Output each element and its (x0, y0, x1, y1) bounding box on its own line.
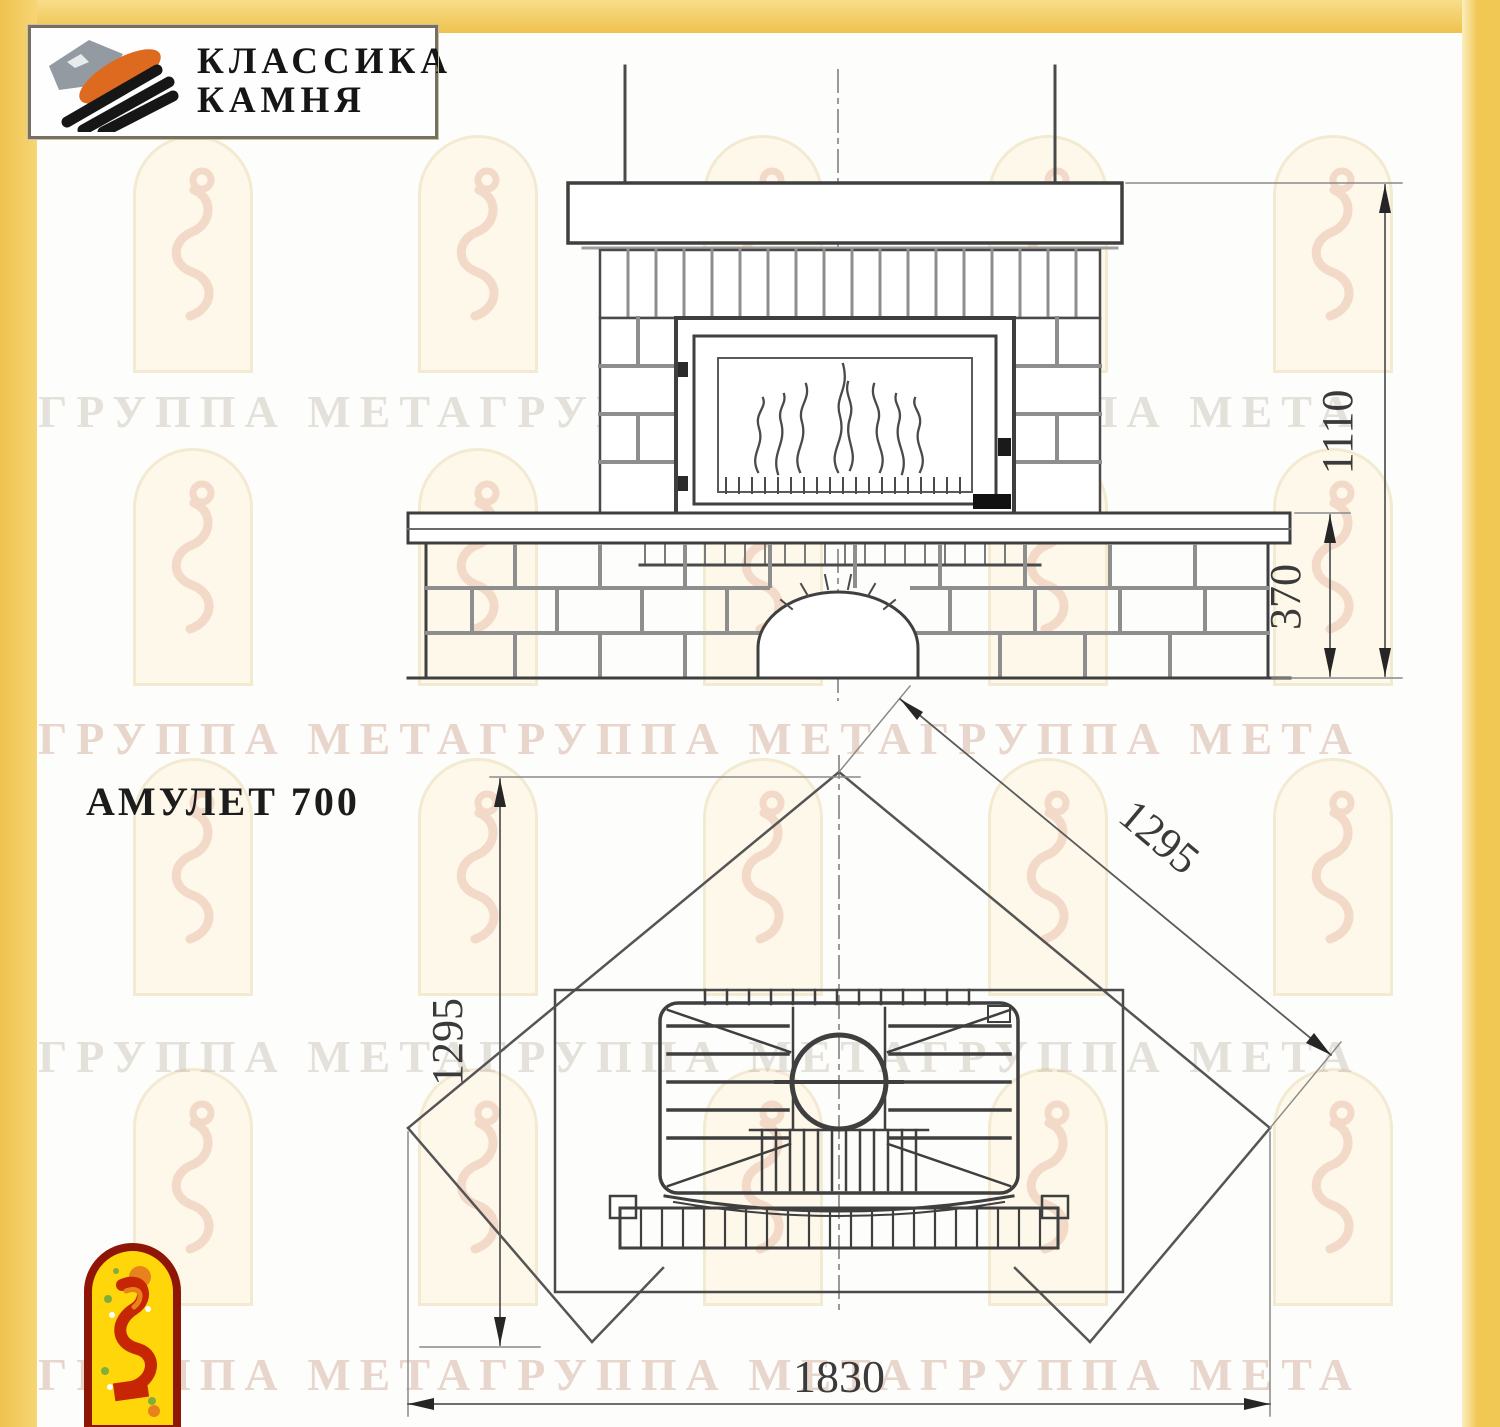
stone-base (408, 543, 1290, 678)
hinge-top (678, 362, 688, 377)
front-dimensions: 1110 370 (1126, 183, 1402, 678)
mantel-slab (568, 183, 1122, 243)
plan-view: 1295 1295 1830 (408, 686, 1341, 1416)
scanned-drawing-page: ГРУППА МЕТАГРУППА МЕТАГРУППА МЕТАГРУППА … (0, 0, 1500, 1427)
company-logo-text: КЛАССИКА КАМНЯ (197, 43, 452, 121)
stone-logo-icon (37, 32, 195, 132)
logo-line2: КАМНЯ (197, 82, 452, 121)
fireplace-technical-drawing: 1110 370 (0, 0, 1500, 1427)
dim-side-left-label: 1295 (423, 998, 472, 1086)
crest-logo (84, 1243, 181, 1427)
hinge-bottom (678, 476, 688, 491)
latch (998, 438, 1011, 456)
dim-front-width-label: 1830 (793, 1351, 885, 1402)
under-bench-vent (640, 545, 1040, 565)
page-title: АМУЛЕТ 700 (86, 778, 360, 825)
door-handle (973, 494, 1011, 509)
firebox-insert (676, 318, 1014, 528)
page-border-left (0, 0, 37, 1427)
company-logo: КЛАССИКА КАМНЯ (28, 25, 438, 139)
logo-line1: КЛАССИКА (197, 43, 452, 82)
page-border-right (1462, 0, 1500, 1427)
crest-figure-icon (92, 1251, 173, 1425)
brick-column-left (600, 318, 676, 513)
front-view: 1110 370 (408, 66, 1402, 700)
dim-bench-height-label: 370 (1261, 564, 1310, 630)
dim-total-height-label: 1110 (1313, 390, 1362, 475)
dim-side-right-label: 1295 (1110, 790, 1209, 884)
base-arch-niche (758, 592, 918, 678)
brick-column-right (1014, 318, 1100, 513)
bench-slab (408, 513, 1290, 543)
